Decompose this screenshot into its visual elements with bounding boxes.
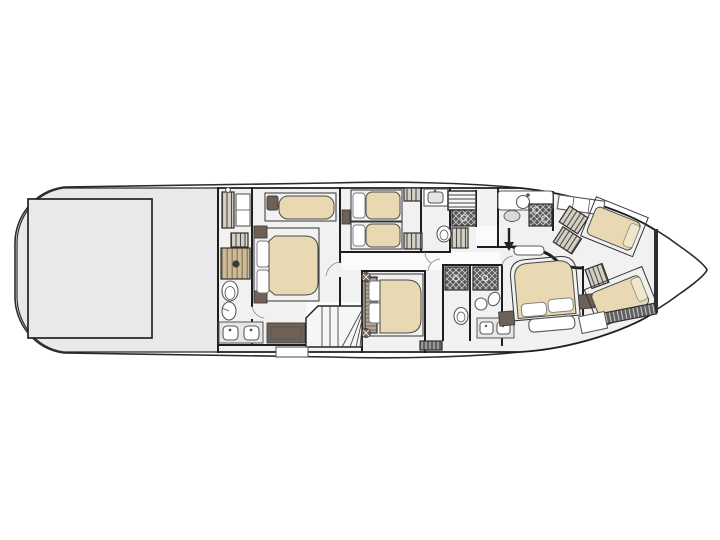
basin [428, 192, 443, 203]
toilet [222, 281, 238, 301]
linen-closet [452, 228, 468, 248]
cooktop [529, 204, 552, 226]
nightstand [254, 226, 267, 238]
sink-basin [223, 326, 238, 340]
winder-staircase [306, 306, 362, 347]
pillow [257, 270, 269, 293]
pillow [353, 193, 365, 218]
threshold-step [514, 246, 544, 255]
basin [480, 322, 493, 334]
wardrobe [404, 233, 422, 249]
basin [504, 211, 520, 222]
under-stair-shower [452, 210, 476, 226]
double-bed-mattress [380, 280, 421, 333]
pillow [353, 225, 365, 246]
dresser-bench [267, 323, 305, 343]
single-bed-mattress [366, 192, 400, 219]
swim-platform [17, 188, 218, 352]
round-sink [517, 196, 530, 209]
tv-cabinet [231, 233, 248, 247]
faucet [526, 193, 530, 197]
yacht-floor-plan [0, 0, 720, 540]
nightstand [499, 311, 515, 326]
chaise-longue [279, 196, 334, 219]
chaise-armrest [267, 196, 278, 210]
double-bed-mattress [269, 236, 318, 295]
single-bed-mattress [366, 224, 400, 247]
shower [445, 267, 468, 290]
shower [473, 267, 498, 290]
pillow [548, 298, 574, 313]
shower-drain [232, 260, 239, 267]
vent-grille [420, 341, 442, 350]
pillow [521, 302, 547, 317]
speaker [342, 210, 350, 224]
washbasin [475, 298, 487, 310]
corner-speaker [362, 273, 371, 282]
main-staircase [448, 191, 476, 210]
pillow [257, 241, 269, 267]
stair-landing [476, 226, 500, 247]
sink-basin [244, 326, 259, 340]
floor-plan-canvas [0, 0, 720, 540]
corner-speaker [362, 329, 371, 338]
garage-hatch [28, 199, 152, 338]
wardrobe [404, 188, 421, 201]
wardrobe [222, 192, 234, 228]
fixture-knob [226, 188, 231, 193]
transom-step [276, 347, 308, 357]
